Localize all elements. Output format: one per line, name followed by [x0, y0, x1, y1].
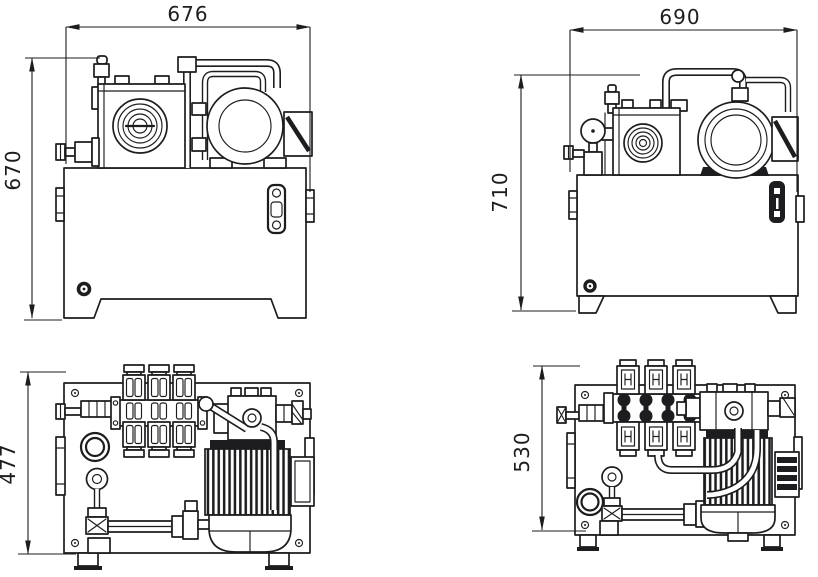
drain-plug: [79, 284, 90, 295]
suction-fitting-chain: [56, 401, 112, 419]
tank-front-right: [569, 175, 804, 313]
drain-plug: [585, 281, 595, 291]
motor-foot: [264, 158, 286, 168]
dim-label-690: 690: [659, 5, 700, 29]
valve-bank-plan-left: [111, 365, 207, 457]
dim-label-530: 530: [510, 431, 534, 472]
pipe-elbow-fitting: [178, 57, 196, 72]
lift-bracket-left: [569, 191, 577, 219]
motor-front-left: [207, 88, 312, 168]
tank-feet: [577, 535, 783, 551]
motor-front-right: [698, 102, 798, 178]
drain-valve-fitting: [56, 138, 99, 166]
view-front-left: 676 670: [1, 2, 314, 320]
dim-label-676: 676: [167, 2, 208, 26]
dim-label-710: 710: [488, 171, 512, 212]
hydraulic-power-unit-drawing: 676 670: [0, 0, 818, 577]
suction-fitting-chain: [557, 405, 611, 423]
terminal-box: [284, 112, 312, 156]
tank-outline: [64, 168, 306, 318]
junction-box: [88, 538, 110, 553]
tank-front-left: [56, 168, 314, 318]
pipe-ball-fitting: [199, 397, 213, 411]
dim-label-477: 477: [0, 443, 20, 484]
dim-label-670: 670: [1, 149, 25, 190]
tank-foot: [770, 296, 796, 313]
pump-assembly-front-left: [56, 56, 185, 168]
terminal-box-plan: [291, 457, 314, 506]
tank-foot: [579, 296, 604, 313]
tank-feet: [74, 553, 293, 570]
view-plan-left: 477: [0, 365, 314, 570]
junction-box: [600, 521, 618, 535]
oil-level-gauge-dark: [769, 181, 785, 223]
lift-bracket-right: [306, 190, 314, 222]
tank-outline: [577, 175, 798, 296]
lift-bracket-left: [567, 433, 575, 488]
lift-bracket-right: [796, 196, 804, 222]
terminal-box: [772, 117, 798, 161]
pipe-union: [732, 70, 744, 82]
motor-body: [207, 88, 283, 164]
view-plan-right: 530: [510, 360, 802, 551]
motor-body: [698, 102, 774, 178]
view-front-right: 690 710: [488, 5, 804, 313]
lift-bracket-left: [56, 437, 65, 495]
technical-drawing-canvas: 676 670: [0, 0, 818, 577]
lift-bracket-left: [56, 188, 64, 221]
terminal-box-plan: [775, 452, 799, 497]
